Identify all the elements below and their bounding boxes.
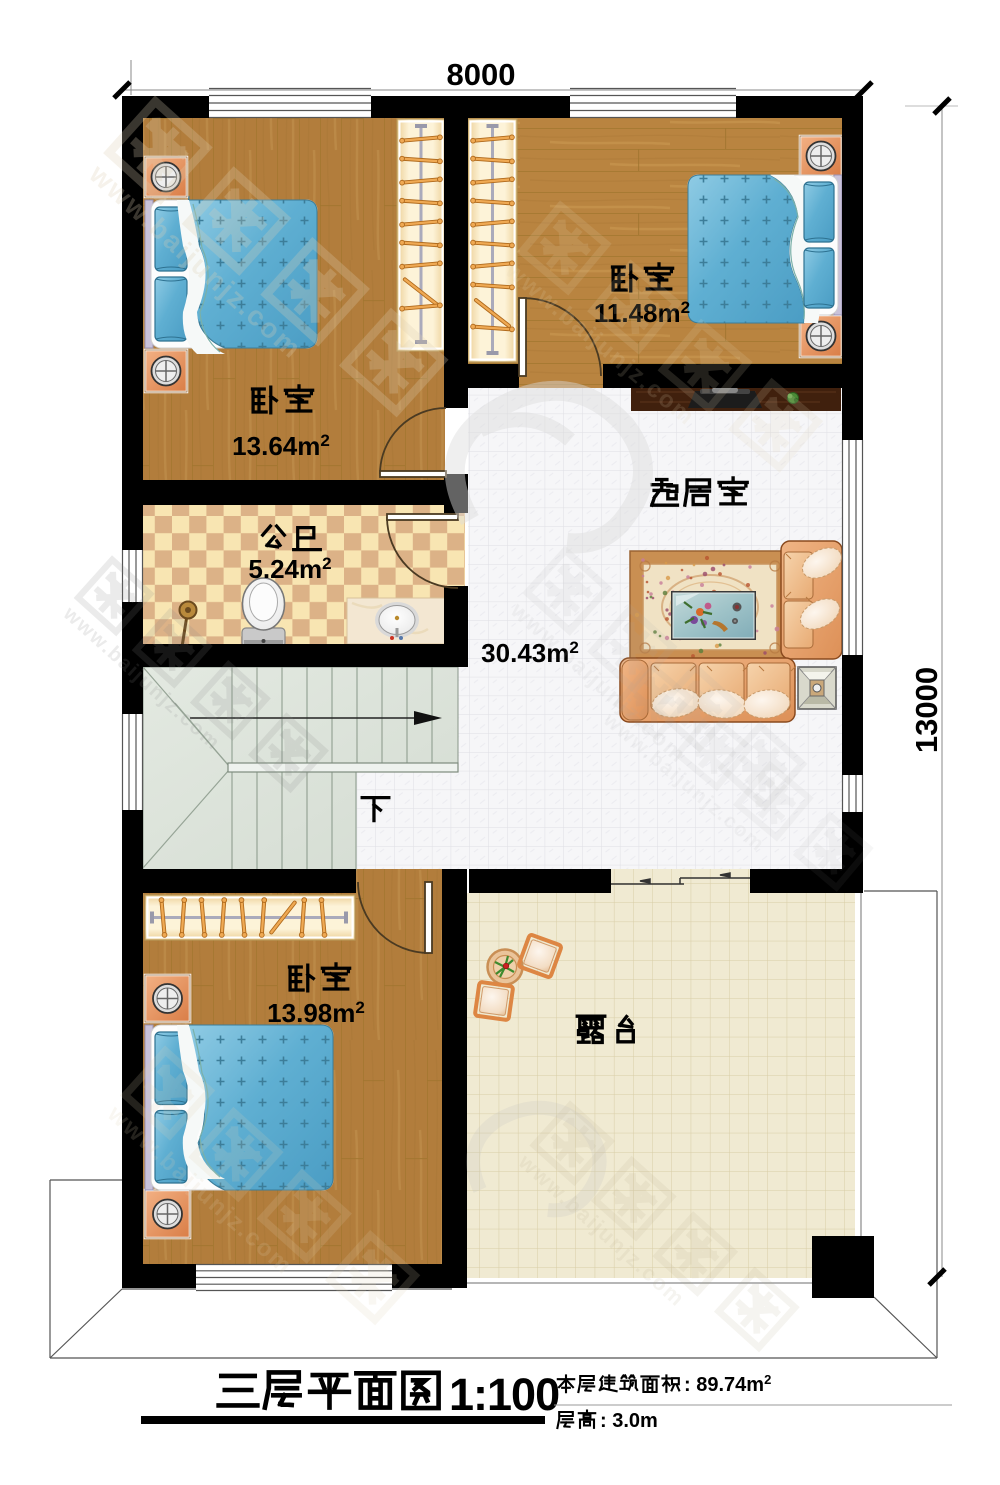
svg-text:13.64m2: 13.64m2	[232, 431, 330, 461]
svg-text:13.98m2: 13.98m2	[267, 998, 365, 1028]
svg-text:: 89.74m2: : 89.74m2	[684, 1372, 771, 1396]
svg-text:5.24m2: 5.24m2	[248, 554, 331, 584]
svg-text:: 3.0m: : 3.0m	[600, 1410, 658, 1432]
svg-text:13000: 13000	[909, 667, 944, 753]
svg-text:1:100: 1:100	[449, 1369, 559, 1420]
svg-text:8000: 8000	[447, 57, 516, 92]
